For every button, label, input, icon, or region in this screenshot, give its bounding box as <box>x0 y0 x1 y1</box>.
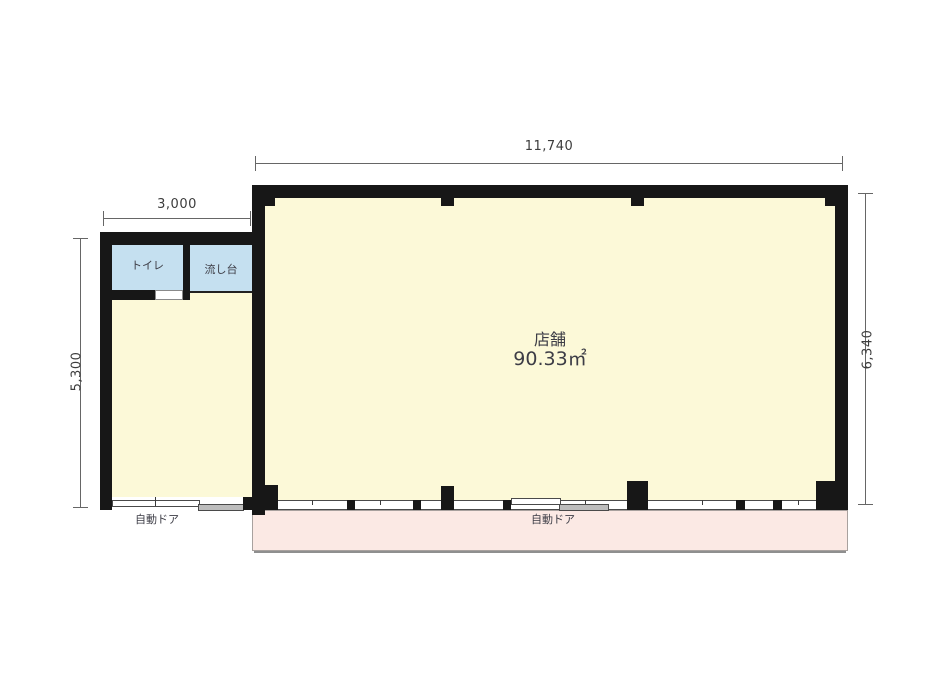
dim-label-annex-height: 5,300 <box>70 329 85 415</box>
annex-auto-door-panel <box>112 500 200 507</box>
glass-joint-tick <box>798 500 799 505</box>
shop-corner-column <box>825 198 835 206</box>
dim-line-main-width <box>255 163 843 164</box>
shop-area-label: 90.33㎡ <box>475 344 625 371</box>
annex-door-tick <box>155 497 156 506</box>
annex-left-wall <box>100 232 112 510</box>
toilet-divider-wall <box>183 245 190 300</box>
storefront-mullion <box>503 500 511 510</box>
auto-door-panel <box>511 498 561 505</box>
storefront-mullion <box>773 500 782 510</box>
shop-pillar <box>631 198 644 206</box>
dim-tick <box>73 507 88 508</box>
shop-corner-column <box>265 485 278 510</box>
annex-auto-door-panel <box>198 504 244 511</box>
shop-pillar <box>627 481 648 510</box>
shop-pillar <box>441 486 454 510</box>
annex-top-wall <box>100 232 265 245</box>
dim-tick <box>858 504 873 505</box>
dim-label-main-height: 6,340 <box>861 307 876 393</box>
dim-tick <box>842 156 843 171</box>
glass-joint-tick <box>312 500 313 505</box>
shop-top-wall <box>252 185 848 198</box>
shop-corner-column <box>265 198 275 206</box>
annex-bottom-wall <box>243 497 265 510</box>
dim-tick <box>103 211 104 226</box>
annex-auto-door-label: 自動ドア <box>107 511 207 527</box>
dim-tick <box>250 211 251 226</box>
auto-door-panel <box>559 504 609 511</box>
storefront-mullion <box>413 500 421 510</box>
shop-right-wall <box>835 185 848 510</box>
dim-tick <box>73 238 88 239</box>
shop-pillar <box>441 198 454 206</box>
dim-label-main-width: 11,740 <box>459 139 639 154</box>
dim-tick <box>255 156 256 171</box>
main-auto-door-label: 自動ドア <box>503 511 603 527</box>
toilet-label: トイレ <box>112 257 183 273</box>
glass-joint-tick <box>380 500 381 505</box>
dim-tick <box>858 193 873 194</box>
toilet-door-opening <box>155 290 183 300</box>
toilet-bottom-wall <box>112 290 155 300</box>
sink-label: 流し台 <box>190 261 252 277</box>
dim-label-annex-width: 3,000 <box>99 197 255 212</box>
dim-line-annex-width <box>103 218 251 219</box>
storefront-mullion <box>347 500 355 510</box>
storefront-mullion <box>736 500 745 510</box>
glass-joint-tick <box>702 500 703 505</box>
floor-plan: 店舗 90.33㎡ トイレ 流し台 自動ドア 自動ドア 11,740 3,000… <box>0 0 941 682</box>
shop-corner-column <box>816 481 835 510</box>
